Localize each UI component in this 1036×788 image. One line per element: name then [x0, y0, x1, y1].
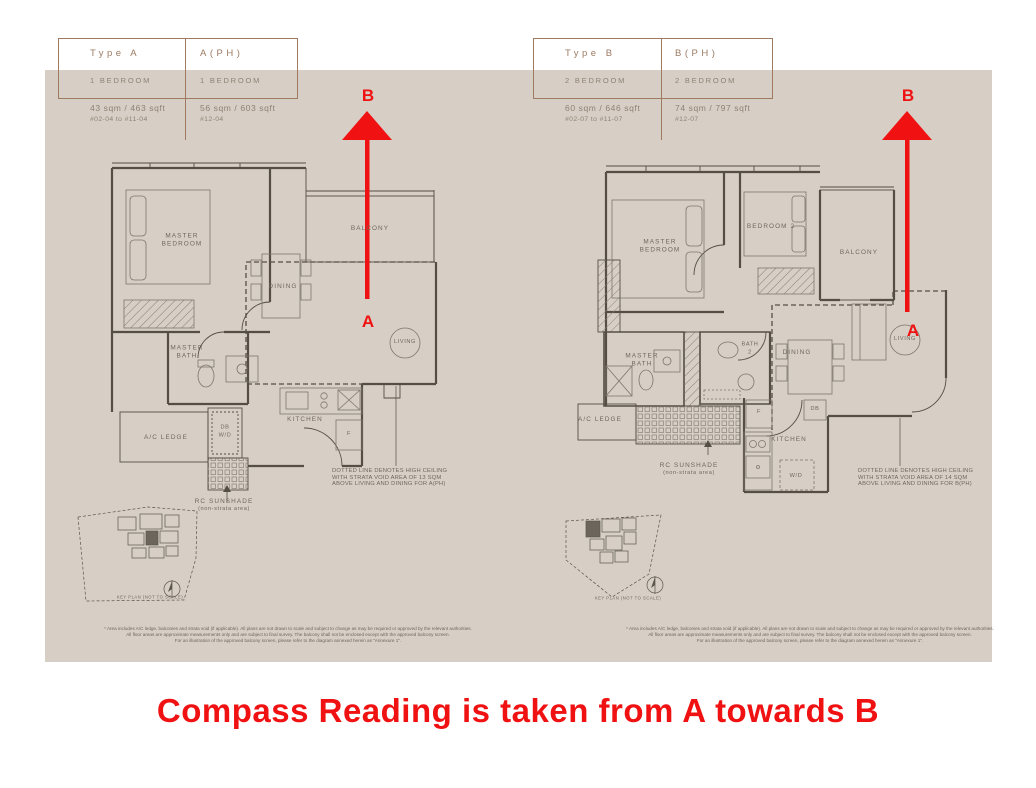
- plan-a-ph-area: 56 sqm / 603 sqft: [200, 103, 275, 113]
- toilet: [198, 360, 214, 387]
- kitchen-counter: [744, 432, 772, 490]
- plan-b-ph-area: 74 sqm / 797 sqft: [675, 103, 750, 113]
- label-rc-sunshade-sub: (non-strata area): [198, 506, 250, 514]
- shelf-bath2: [704, 390, 740, 399]
- room-label-ac-ledge: A/C LEDGE: [578, 416, 622, 424]
- plan-b-ph-bedrooms: 2 BEDROOM: [675, 76, 736, 85]
- room-label-balcony: BALCONY: [840, 249, 878, 257]
- room-label-kitchen: KITCHEN: [771, 436, 807, 444]
- room-label-ac-ledge: A/C LEDGE: [144, 434, 188, 442]
- room-label-master-bath: MASTER BATH: [625, 352, 658, 367]
- plan-b-furniture: [606, 192, 920, 490]
- plan-a-strata-void-dashed: [246, 262, 436, 384]
- room-label-master-bedroom: MASTER BEDROOM: [640, 238, 681, 253]
- key-plan-a: [78, 507, 197, 601]
- room-label-living: LIVING: [394, 339, 416, 347]
- compass-marker-b: B: [362, 86, 374, 106]
- compass-marker-a: A: [362, 312, 374, 332]
- room-label-db: DB: [811, 406, 820, 414]
- room-label-master-bedroom: MASTER BEDROOM: [162, 232, 203, 247]
- plan-b-key-plan-label: KEY PLAN (NOT TO SCALE): [595, 596, 661, 601]
- room-label-dining: DINING: [783, 349, 812, 357]
- room-label-fridge: F: [757, 409, 761, 417]
- room-label-bedroom-2: BEDROOM 2: [747, 223, 795, 231]
- plan-a-key-plan-label: KEY PLAN (NOT TO SCALE): [117, 595, 183, 600]
- wardrobe: [124, 300, 194, 328]
- room-label-balcony: BALCONY: [351, 225, 389, 233]
- plan-a-ph-header: A(PH): [200, 48, 243, 59]
- sink-bath2: [738, 374, 754, 390]
- plan-a-area: 43 sqm / 463 sqft: [90, 103, 165, 113]
- key-plan-b: [566, 515, 663, 597]
- north-compass-icon: [647, 576, 663, 594]
- room-label-wd: W/D: [790, 473, 803, 481]
- room-label-db-wd: DB W/D: [219, 424, 232, 439]
- compass-reading-caption: Compass Reading is taken from A towards …: [0, 692, 1036, 730]
- room-label-master-bath: MASTER BATH: [170, 344, 203, 359]
- plan-a-type-header: Type A: [90, 48, 140, 59]
- compass-marker-a: A: [907, 321, 919, 341]
- plan-a-table-divider: [185, 38, 186, 140]
- dining-table: [776, 340, 844, 394]
- plan-a-high-ceiling-note: DOTTED LINE DENOTES HIGH CEILING WITH ST…: [332, 468, 447, 488]
- sofa: [852, 304, 886, 360]
- wardrobe: [758, 268, 814, 294]
- toilet-master: [639, 370, 653, 390]
- room-label-dining: DINING: [269, 283, 298, 291]
- plan-a-units: #02-04 to #11-04: [90, 116, 148, 123]
- compass-arrow-plan-b: [882, 111, 932, 312]
- plan-b-thin: [578, 166, 946, 466]
- floorplan-linework: [0, 0, 1036, 788]
- kitchen-counter: [280, 388, 362, 414]
- plan-b-area: 60 sqm / 646 sqft: [565, 103, 640, 113]
- label-rc-sunshade: RC SUNSHADE: [195, 498, 254, 506]
- plan-b-table-divider: [661, 38, 662, 140]
- room-label-fridge: F: [347, 431, 351, 439]
- plan-b-high-ceiling-note: DOTTED LINE DENOTES HIGH CEILING WITH ST…: [858, 468, 973, 488]
- plan-a-ph-units: #12-04: [200, 116, 224, 123]
- plan-a-disclaimer: * Area includes A/C ledge, balconies and…: [58, 626, 518, 644]
- plan-b-disclaimer: * Area includes A/C ledge, balconies and…: [580, 626, 1036, 644]
- room-label-kitchen: KITCHEN: [287, 416, 323, 424]
- label-rc-sunshade-sub: (non-strata area): [663, 470, 715, 478]
- plan-b-ph-header: B(PH): [675, 48, 718, 59]
- compass-arrow-plan-a: [342, 111, 392, 299]
- plan-b-ph-units: #12-07: [675, 116, 699, 123]
- plan-b-type-header: Type B: [565, 48, 616, 59]
- plan-a-ph-bedrooms: 1 BEDROOM: [200, 76, 261, 85]
- plan-b-units: #02-07 to #11-07: [565, 116, 623, 123]
- compass-marker-b: B: [902, 86, 914, 106]
- plan-b-bedrooms: 2 BEDROOM: [565, 76, 626, 85]
- toilet-bath2: [718, 342, 738, 358]
- plan-a-bedrooms: 1 BEDROOM: [90, 76, 151, 85]
- plan-b-strata-void-dashed: [772, 291, 945, 430]
- arrowhead-icon: [342, 111, 392, 140]
- shower: [606, 366, 632, 396]
- room-label-bath-2: BATH 2: [742, 341, 759, 356]
- label-rc-sunshade: RC SUNSHADE: [660, 462, 719, 470]
- arrowhead-icon: [882, 111, 932, 140]
- vanity: [226, 356, 258, 382]
